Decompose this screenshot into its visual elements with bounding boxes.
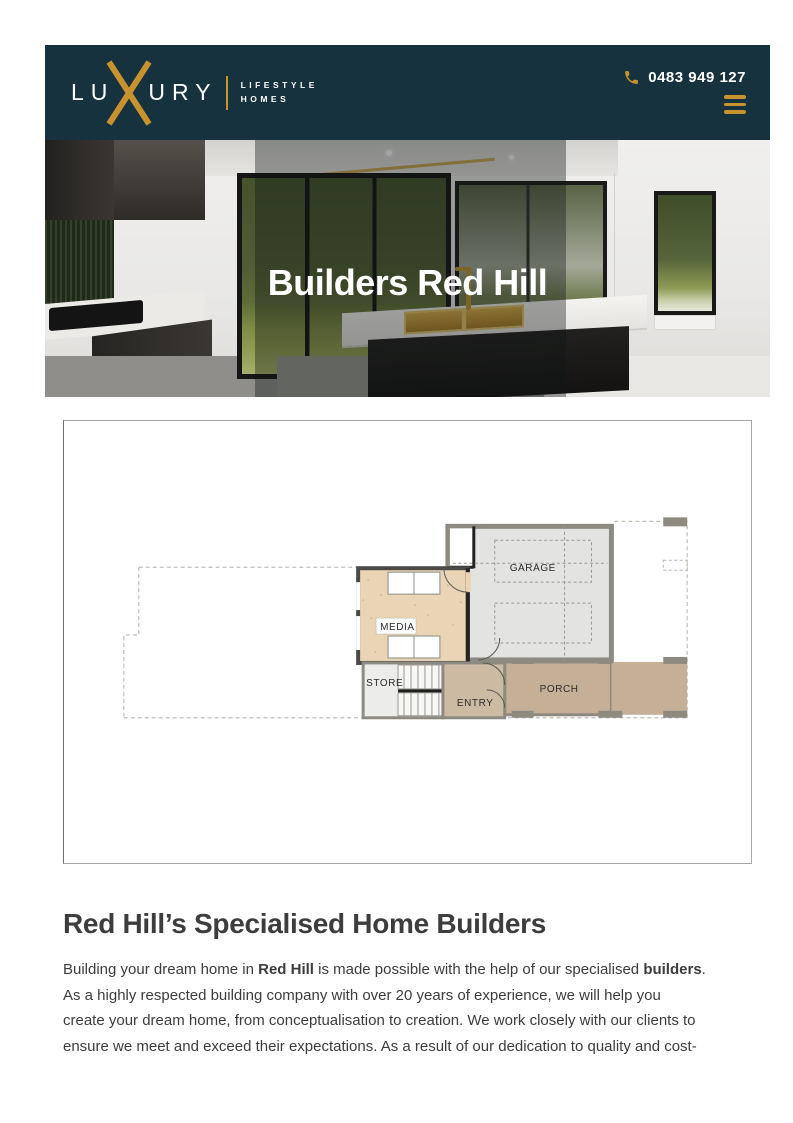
room-label-garage: GARAGE xyxy=(510,563,556,574)
hero-banner: Builders Red Hill xyxy=(45,140,770,397)
floorplan-frame: GARAGE MEDIA STORE ENTRY PORCH xyxy=(63,420,752,864)
hero-title: Builders Red Hill xyxy=(45,262,770,304)
paragraph-line: ensure we meet and exceed their expectat… xyxy=(63,1034,752,1060)
hero-cabinet-upper-2 xyxy=(114,140,205,220)
page-heading: Red Hill’s Specialised Home Builders xyxy=(63,908,752,940)
intro-paragraph: Building your dream home in Red Hill is … xyxy=(63,957,752,1059)
room-label-porch: PORCH xyxy=(540,684,579,695)
header-right: 0483 949 127 xyxy=(623,69,746,116)
phone-icon xyxy=(623,69,640,86)
page-container: LU URY LIFESTYLE HOMES 0483 949 127 xyxy=(45,45,770,1059)
content-section: Red Hill’s Specialised Home Builders Bui… xyxy=(45,864,770,1059)
logo-divider xyxy=(226,76,228,110)
logo-tagline-bottom: HOMES xyxy=(241,93,318,106)
phone-number: 0483 949 127 xyxy=(648,69,746,86)
phone-link[interactable]: 0483 949 127 xyxy=(623,69,746,86)
room-label-store: STORE xyxy=(366,678,403,689)
hero-window-sill xyxy=(654,315,716,330)
logo-tagline-top: LIFESTYLE xyxy=(241,79,318,92)
logo-tagline: LIFESTYLE HOMES xyxy=(241,79,318,105)
hamburger-menu-icon[interactable] xyxy=(724,93,746,116)
site-header: LU URY LIFESTYLE HOMES 0483 949 127 xyxy=(45,45,770,140)
paragraph-line: As a highly respected building company w… xyxy=(63,983,752,1009)
logo-wordmark: LU URY xyxy=(71,59,218,127)
paragraph-line: Building your dream home in Red Hill is … xyxy=(63,957,752,983)
logo-word-end: URY xyxy=(148,79,217,106)
logo-x-icon xyxy=(104,59,154,127)
paragraph-line: create your dream home, from conceptuali… xyxy=(63,1008,752,1034)
room-label-entry: ENTRY xyxy=(457,698,494,709)
floorplan-image: GARAGE MEDIA STORE ENTRY PORCH xyxy=(64,420,751,864)
room-label-media: MEDIA xyxy=(380,622,415,633)
floorplan-section: GARAGE MEDIA STORE ENTRY PORCH xyxy=(45,397,770,864)
logo[interactable]: LU URY LIFESTYLE HOMES xyxy=(71,59,318,127)
